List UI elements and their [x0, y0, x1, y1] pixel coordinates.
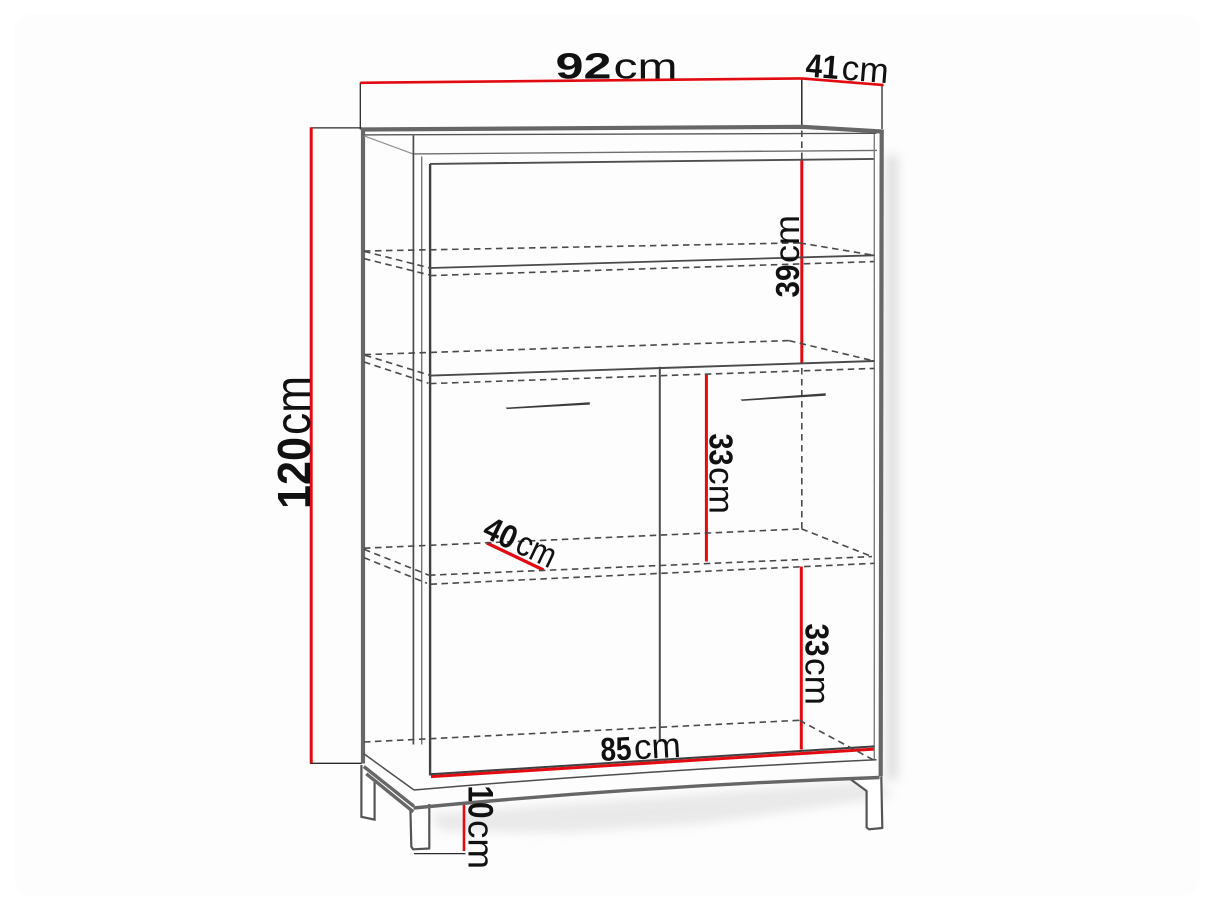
- svg-text:120: 120: [268, 437, 320, 509]
- svg-text:cm: cm: [461, 820, 502, 869]
- svg-text:cm: cm: [265, 376, 321, 435]
- svg-text:cm: cm: [768, 215, 807, 263]
- svg-text:39: 39: [769, 265, 806, 298]
- svg-text:85: 85: [599, 729, 632, 768]
- svg-text:cm: cm: [614, 45, 678, 86]
- svg-text:33: 33: [703, 434, 740, 466]
- svg-text:92: 92: [556, 45, 612, 86]
- svg-text:cm: cm: [702, 467, 741, 514]
- svg-text:33: 33: [799, 624, 836, 657]
- svg-text:cm: cm: [798, 658, 837, 705]
- svg-text:10: 10: [461, 786, 500, 819]
- svg-text:41: 41: [804, 47, 840, 87]
- svg-text:cm: cm: [633, 726, 682, 767]
- svg-text:cm: cm: [840, 48, 890, 91]
